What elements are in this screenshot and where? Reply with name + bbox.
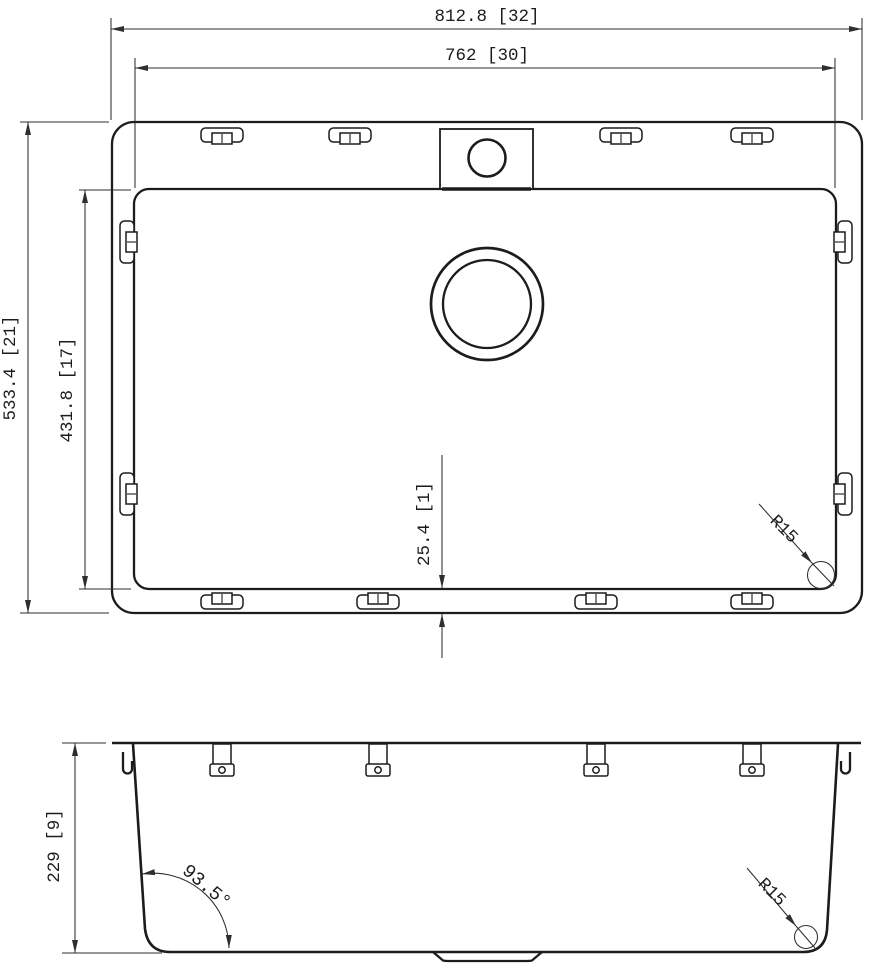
rim-hook-right [841,752,850,774]
mounting-clip [575,593,617,609]
side-view-dimensions: 229 [9] 93.5° R15 [45,743,818,953]
mounting-clip [357,593,399,609]
drawing-page: 812.8 [32] 762 [30] 533.4 [21] 431.8 [17… [0,0,895,971]
drain-inner-circle [443,260,531,348]
mounting-clip [731,128,773,144]
mounting-clips-bottom [201,593,773,609]
faucet-deck [440,129,533,189]
dim-wall-angle-label: 93.5° [177,860,235,914]
mounting-clip-side [740,744,764,776]
side-view [112,743,861,961]
mounting-clip [120,221,137,263]
drain-outer-circle [431,248,543,360]
dim-wall-angle: 93.5° [142,860,235,948]
mounting-clip-side [210,744,234,776]
dim-corner-radius-top: R15 [759,504,835,589]
sink-outer-rim [112,122,862,613]
technical-drawing-canvas: 812.8 [32] 762 [30] 533.4 [21] 431.8 [17… [0,0,895,971]
drain-fitting [433,952,542,961]
top-view [112,122,862,613]
mounting-clip [731,593,773,609]
mounting-clip [120,473,137,515]
dim-overall-depth: 533.4 [21] [1,122,109,613]
mounting-clip [201,593,243,609]
mounting-clip [329,128,371,144]
mounting-clip [201,128,243,144]
dim-side-height-label: 229 [9] [45,809,65,883]
dim-overall-depth-label: 533.4 [21] [1,315,21,420]
mounting-clip-side [584,744,608,776]
dim-corner-radius-side: R15 [747,868,818,949]
dim-corner-radius-side-label: R15 [753,874,789,910]
drain [431,248,543,360]
sink-body-profile [133,744,838,952]
radius-indicator-circle [808,562,835,589]
dim-rim-offset-label: 25.4 [1] [415,482,435,566]
faucet-plate [440,129,533,189]
top-view-dimensions: 812.8 [32] 762 [30] 533.4 [21] 431.8 [17… [1,7,862,658]
side-mounting-clips [210,744,764,776]
mounting-clip [600,128,642,144]
dim-rim-offset: 25.4 [1] [415,455,442,658]
dim-bowl-width-label: 762 [30] [445,46,529,66]
mounting-clip-side [366,744,390,776]
dim-bowl-depth-label: 431.8 [17] [58,337,78,442]
dim-overall-width-label: 812.8 [32] [434,7,539,27]
rim-hook-left [123,752,132,774]
